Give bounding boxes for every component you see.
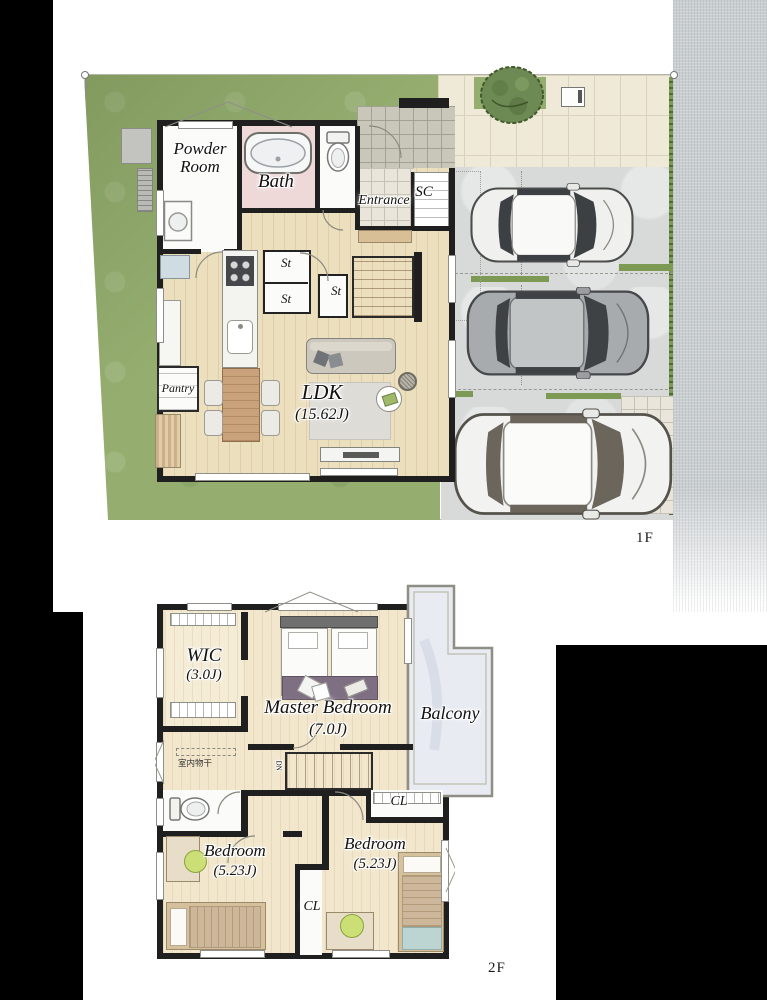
meter-box-1 bbox=[121, 128, 152, 164]
label-ldk: LDK bbox=[292, 382, 352, 404]
label-st1: St bbox=[272, 256, 300, 270]
site-boundary-slant bbox=[62, 75, 87, 522]
label-st3: St bbox=[322, 284, 350, 298]
floorplan-canvas: Powder Room Bath Entrance SC St St St Pa… bbox=[0, 0, 767, 1000]
car-icon-suv-gray bbox=[459, 287, 657, 379]
label-entrance: Entrance bbox=[352, 194, 416, 209]
frame-black-bottom-right bbox=[556, 645, 767, 1000]
label-st2: St bbox=[272, 292, 300, 306]
label-powder-line2: Room bbox=[160, 158, 240, 176]
tree-icon bbox=[478, 64, 546, 126]
label-bedroom2: Bedroom bbox=[320, 835, 430, 853]
car-icon-compact bbox=[469, 183, 635, 267]
label-pantry: Pantry bbox=[156, 382, 200, 394]
label-bedroom1-size: (5.23J) bbox=[175, 864, 295, 880]
road bbox=[673, 0, 767, 612]
frame-black-left-top bbox=[0, 0, 53, 612]
survey-marker-2 bbox=[670, 71, 678, 79]
label-cl1: CL bbox=[381, 795, 417, 810]
label-bedroom2-size: (5.23J) bbox=[320, 857, 430, 873]
label-sc: SC bbox=[410, 185, 438, 201]
label-powder-room: Powder Room bbox=[160, 140, 240, 175]
label-bedroom1: Bedroom bbox=[175, 842, 295, 860]
label-powder-line1: Powder bbox=[160, 140, 240, 158]
mailbox-icon bbox=[561, 87, 585, 107]
label-balcony: Balcony bbox=[412, 704, 488, 723]
meter-box-2 bbox=[137, 168, 153, 212]
label-wic-size: (3.0J) bbox=[162, 668, 246, 684]
green-strip-4 bbox=[546, 393, 621, 399]
frame-black-left-bottom bbox=[0, 612, 83, 1000]
label-cl2: CL bbox=[296, 900, 328, 915]
label-bath: Bath bbox=[240, 172, 312, 192]
survey-marker-1 bbox=[81, 71, 89, 79]
label-ldk-size: (15.62J) bbox=[282, 407, 362, 424]
stall-line-2 bbox=[443, 389, 673, 390]
floor-tag-2f: 2F bbox=[488, 960, 506, 977]
floor-tag-1f: 1F bbox=[636, 530, 654, 547]
label-wic: WIC bbox=[166, 646, 242, 666]
car-icon-suv-white bbox=[453, 405, 673, 523]
green-strip-1 bbox=[471, 276, 549, 282]
label-master: Master Bedroom bbox=[248, 698, 408, 718]
label-master-size: (7.0J) bbox=[248, 722, 408, 739]
